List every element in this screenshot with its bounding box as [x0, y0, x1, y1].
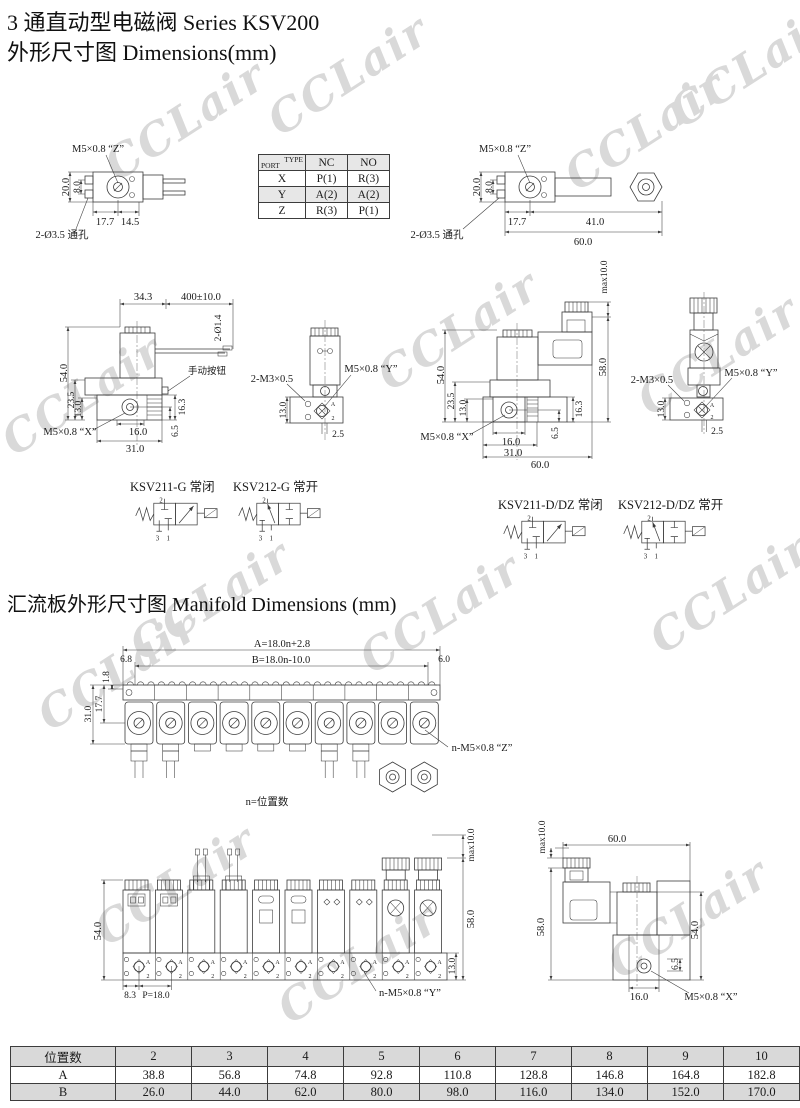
dim-thread-x: M5×0.8 “X” [43, 427, 97, 438]
port-3: 3 [524, 553, 528, 560]
drawing-top-view-din: M5×0.8 “Z” 20.0 8.0 17.7 41.0 60.0 2-Ø3.… [405, 138, 703, 250]
dim-23-5: 23.5 [447, 392, 457, 409]
dim-thread-z: n-M5×0.8 “Z” [452, 743, 513, 754]
dim-16-3: 16.3 [575, 400, 585, 417]
dim-thread-y: n-M5×0.8 “Y” [379, 988, 441, 999]
dim-max10: max10.0 [467, 828, 477, 861]
dim-thread-x: M5×0.8 “X” [420, 432, 474, 443]
port-table-corner: TYPE PORT [259, 155, 306, 171]
symbol-label: KSV212-D/DZ 常开 [618, 494, 723, 513]
port-z-nc: R(3) [306, 203, 348, 219]
dim-13: 13.0 [459, 399, 469, 416]
dim-41: 41.0 [586, 217, 604, 228]
port-1: 1 [655, 553, 658, 560]
symbol-ksv211-g: KSV211-G 常闭 2 3 1 [130, 476, 230, 548]
drawing-manifold-front: A 2 54.0 max10.0 58.0 13.0 8.3 P=18.0 [92, 832, 487, 1012]
dim-thread-x: M5×0.8 “X” [684, 992, 738, 1003]
dim-6-5: 6.5 [551, 427, 561, 439]
dim-60: 60.0 [531, 460, 549, 471]
dim-6-0: 6.0 [438, 655, 450, 665]
drawing-manifold-top: A=18.0n+2.8 B=18.0n-10.0 6.8 6.0 1.8 17.… [80, 638, 550, 810]
port-y-no: A(2) [348, 187, 390, 203]
port-letter-2: 2 [332, 416, 335, 422]
watermark: CCLair [661, 0, 800, 138]
dim-13: 13.0 [279, 401, 289, 418]
symbol-ksv212-g: KSV212-G 常开 2 3 1 [233, 476, 333, 548]
manifold-size-table: 位置数 2 3 4 5 6 7 8 9 10 A 38.8 56.8 74.8 … [10, 1046, 800, 1101]
drawing-side-din: max10.0 58.0 54.0 23.5 13.0 M5×0.8 “X” 1… [415, 255, 625, 470]
corner-type: TYPE [284, 155, 303, 164]
dim-58: 58.0 [466, 910, 477, 928]
port-2: 2 [159, 497, 163, 504]
dim-60: 60.0 [574, 237, 592, 248]
dim-16: 16.0 [630, 992, 648, 1003]
label-manual-button: 手动按钮 [188, 365, 227, 377]
dim-screws: 2-M3×0.5 [251, 374, 293, 385]
dim-thread-y: M5×0.8 “Y” [344, 364, 398, 375]
port-2: 2 [647, 515, 651, 522]
dim-a: A=18.0n+2.8 [254, 639, 310, 650]
drawing-front-din: A 2 2-M3×0.5 M5×0.8 “Y” 13.0 2.5 [620, 258, 798, 458]
page-title-line2: 外形尺寸图 Dimensions(mm) [7, 38, 277, 68]
drawing-top-view-grommet: M5×0.8 “Z” 20.0 8.0 17.7 14.5 2-Ø3.5 通孔 [28, 138, 258, 250]
dim-58: 58.0 [536, 918, 547, 936]
dim-wire-length: 400±10.0 [181, 292, 221, 303]
symbol-ksv211-d: KSV211-D/DZ 常闭 2 3 1 [498, 494, 603, 566]
port-3: 3 [156, 535, 160, 542]
port-y-nc: A(2) [306, 187, 348, 203]
port-x-no: R(3) [348, 171, 390, 187]
dim-31: 31.0 [504, 448, 522, 459]
dim-58: 58.0 [598, 358, 609, 376]
corner-port: PORT [261, 161, 280, 170]
port-2: 2 [262, 497, 266, 504]
symbol-ksv212-d: KSV212-D/DZ 常开 2 3 1 [618, 494, 723, 566]
dim-max10: max10.0 [600, 260, 610, 293]
port-z-no: P(1) [348, 203, 390, 219]
dim-31: 31.0 [126, 444, 144, 455]
dim-20: 20.0 [472, 178, 483, 196]
dim-6-5: 6.5 [671, 958, 681, 970]
port-y: Y [259, 187, 306, 203]
port-z: Z [259, 203, 306, 219]
port-table: TYPE PORT NC NO X P(1) R(3) Y A(2) A(2) … [258, 154, 390, 219]
dim-54: 54.0 [436, 366, 447, 384]
symbol-label: KSV211-D/DZ 常闭 [498, 494, 603, 513]
port-x-nc: P(1) [306, 171, 348, 187]
port-1: 1 [535, 553, 538, 560]
port-letter-2: 2 [711, 415, 714, 421]
dim-54: 54.0 [59, 364, 70, 382]
page-title-line1: 3 通直动型电磁阀 Series KSV200 [7, 8, 319, 38]
dim-14-5: 14.5 [121, 217, 139, 228]
col-nc: NC [306, 155, 348, 171]
dim-60: 60.0 [608, 834, 626, 845]
dim-holes: 2-Ø3.5 通孔 [35, 228, 89, 241]
dim-54: 54.0 [690, 921, 701, 939]
dim-2-5: 2.5 [711, 427, 723, 437]
dim-6-8: 6.8 [120, 655, 132, 665]
port-x: X [259, 171, 306, 187]
dim-8: 8.0 [73, 181, 83, 193]
symbol-label: KSV211-G 常闭 [130, 476, 230, 495]
port-2: 2 [527, 515, 531, 522]
dim-20: 20.0 [61, 178, 72, 196]
port-1: 1 [167, 535, 170, 542]
dim-16: 16.0 [502, 437, 520, 448]
dim-16-3: 16.3 [178, 398, 188, 415]
dim-pitch: P=18.0 [142, 991, 170, 1001]
dim-b: B=18.0n-10.0 [252, 655, 310, 666]
dim-thread-z: M5×0.8 “Z” [72, 144, 124, 155]
note-positions: n=位置数 [246, 795, 289, 808]
port-1: 1 [270, 535, 273, 542]
dim-wire-dia: 2-Ø1.4 [214, 314, 224, 341]
dim-thread-y: M5×0.8 “Y” [724, 368, 778, 379]
dim-16: 16.0 [129, 427, 147, 438]
col-no: NO [348, 155, 390, 171]
dim-54: 54.0 [93, 922, 104, 940]
dim-8-3: 8.3 [124, 991, 136, 1001]
dim-17-7: 17.7 [95, 695, 105, 712]
port-letter-a: A [331, 402, 336, 408]
port-letter-a: A [710, 403, 715, 409]
dim-1-8: 1.8 [102, 671, 112, 683]
dim-17-7: 17.7 [508, 217, 526, 228]
dim-2-5: 2.5 [332, 430, 344, 440]
dim-holes: 2-Ø3.5 通孔 [410, 228, 464, 241]
drawing-front-grommet: A 2 2-M3×0.5 M5×0.8 “Y” 13.0 2.5 [243, 312, 410, 445]
dim-17-7: 17.7 [96, 217, 114, 228]
dim-6-5: 6.5 [171, 425, 181, 437]
port-3: 3 [644, 553, 648, 560]
dim-thread-z: M5×0.8 “Z” [479, 144, 531, 155]
dim-34-3: 34.3 [134, 292, 152, 303]
size-table-header: 位置数 [11, 1047, 116, 1067]
dim-31: 31.0 [84, 705, 94, 722]
drawing-side-grommet: 34.3 400±10.0 2-Ø1.4 手动按钮 54.0 23.5 13.0… [25, 283, 240, 455]
dim-screws: 2-M3×0.5 [631, 375, 673, 386]
dim-13: 13.0 [448, 957, 458, 974]
dim-13: 13.0 [657, 400, 667, 417]
dim-13: 13.0 [74, 400, 84, 417]
drawing-manifold-side: max10.0 58.0 60.0 54.0 6.5 16.0 M5×0.8 “… [525, 818, 797, 1013]
symbol-label: KSV212-G 常开 [233, 476, 333, 495]
dim-max10: max10.0 [538, 820, 548, 853]
table-row-b: B 26.0 44.0 62.0 80.0 98.0 116.0 134.0 1… [11, 1084, 800, 1101]
port-3: 3 [259, 535, 263, 542]
manifold-heading: 汇流板外形尺寸图 Manifold Dimensions (mm) [7, 588, 396, 617]
table-row-a: A 38.8 56.8 74.8 92.8 110.8 128.8 146.8 … [11, 1067, 800, 1084]
dim-8: 8.0 [485, 181, 495, 193]
